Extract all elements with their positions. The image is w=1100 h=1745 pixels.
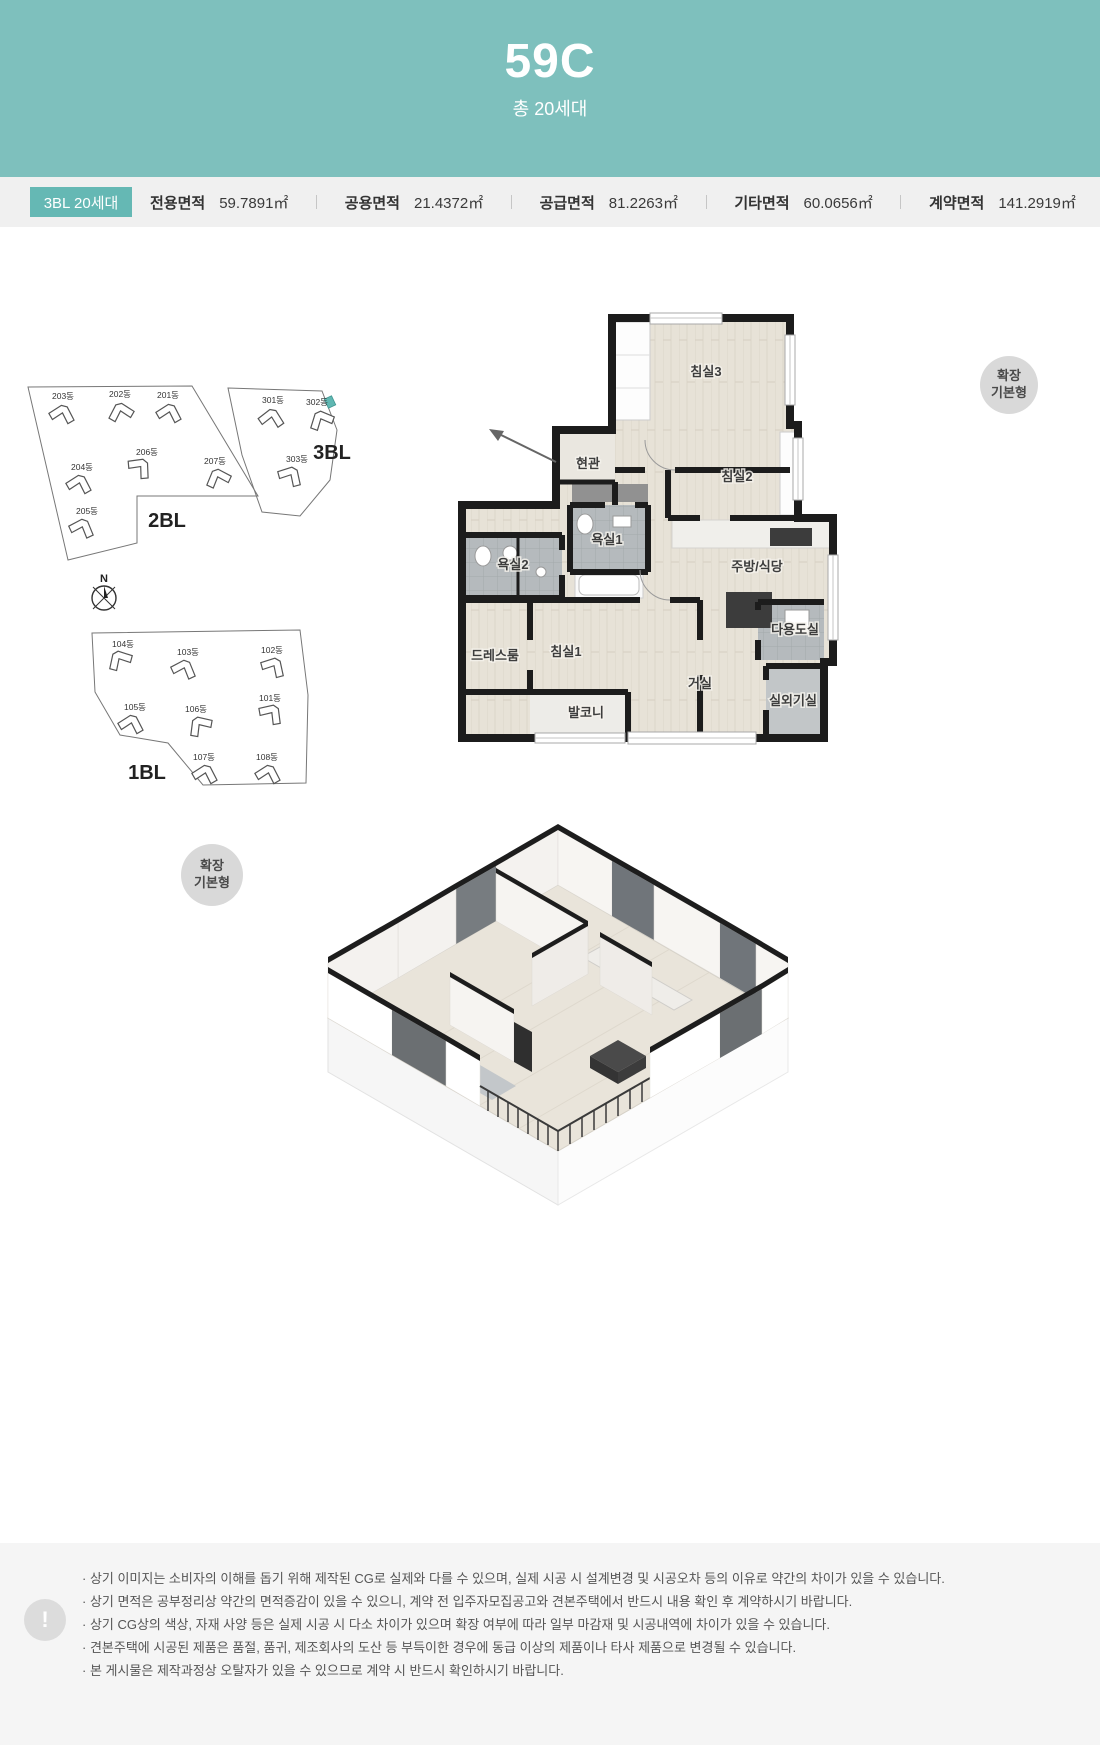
badge-line1: 확장: [997, 368, 1021, 385]
disclaimer-note: · 견본주택에 시공된 제품은 품절, 품귀, 제조회사의 도산 등 부득이한 …: [82, 1636, 1082, 1659]
compass-icon: N: [92, 573, 116, 610]
building-marker: [184, 711, 214, 739]
area-label: 계약면적: [929, 192, 984, 213]
room-label-ac-room: 실외기실: [769, 693, 817, 708]
floor-plan-2d: 침실3 현관 침실2 욕실1 욕실2 주방/식당 다용도실 드레스룸 침실1 거…: [455, 310, 855, 750]
room-label-bedroom3: 침실3: [690, 364, 721, 379]
area-value: 81.2263㎡: [609, 192, 678, 213]
area-item-supply: 공급면적 81.2263㎡: [540, 192, 678, 213]
toilet-bath2: [475, 546, 491, 566]
building-label: 107동: [193, 752, 215, 762]
divider: [900, 195, 901, 209]
building-marker: [275, 462, 306, 489]
building-label: 205동: [76, 506, 98, 516]
building-label: 206동: [136, 447, 158, 457]
area-label: 전용면적: [150, 192, 205, 213]
room-label-kitchen: 주방/식당: [731, 559, 782, 574]
building-marker: [191, 763, 220, 785]
unit-type-title: 59C: [0, 36, 1100, 89]
disclaimer-note: · 상기 면적은 공부정리상 약간의 면적증감이 있을 수 있으니, 계약 전 …: [82, 1590, 1082, 1613]
disclaimer-note: · 상기 CG상의 색상, 자재 사양 등은 실제 시공 시 다소 차이가 있으…: [82, 1613, 1082, 1636]
room-label-entry: 현관: [576, 456, 600, 471]
disclaimer-notes: · 상기 이미지는 소비자의 이해를 돕기 위해 제작된 CG로 실제와 다를 …: [82, 1567, 1082, 1682]
type-header: 59C 총 20세대: [0, 0, 1100, 177]
kitchen-island: [726, 592, 772, 628]
disclaimer-footer: ! · 상기 이미지는 소비자의 이해를 돕기 위해 제작된 CG로 실제와 다…: [0, 1543, 1100, 1745]
room-label-bath2: 욕실2: [497, 557, 528, 572]
building-label: 204동: [71, 462, 93, 472]
building-label: 202동: [109, 389, 131, 399]
area-label: 기타면적: [734, 192, 789, 213]
room-label-bedroom1: 침실1: [550, 644, 581, 659]
building-label: 102동: [261, 645, 283, 655]
block-name-3bl: 3BL: [313, 442, 351, 464]
building-label: 104동: [112, 639, 134, 649]
compass-north-label: N: [100, 573, 108, 585]
divider: [706, 195, 707, 209]
building-label: 103동: [177, 647, 199, 657]
building-marker: [256, 699, 286, 727]
room-label-living: 거실: [688, 676, 712, 691]
area-label: 공용면적: [345, 192, 400, 213]
area-value: 60.0656㎡: [804, 192, 873, 213]
sink-bath1: [613, 516, 631, 527]
toilet-bath1: [577, 514, 593, 534]
block-units-badge: 3BL 20세대: [30, 187, 132, 217]
area-info-bar: 3BL 20세대 전용면적 59.7891㎡ 공용면적 21.4372㎡ 공급면…: [0, 177, 1100, 227]
building-marker: [48, 403, 77, 425]
building-label: 203동: [52, 391, 74, 401]
building-marker: [258, 653, 289, 680]
building-label: 201동: [157, 390, 179, 400]
disclaimer-note: · 본 게시물은 제작과정상 오탈자가 있을 수 있으므로 계약 시 반드시 확…: [82, 1659, 1082, 1682]
exclamation-icon: !: [24, 1599, 66, 1641]
building-label: 101동: [259, 693, 281, 703]
area-value: 141.2919㎡: [998, 192, 1076, 213]
room-label-utility: 다용도실: [771, 622, 819, 637]
building-label: 106동: [185, 704, 207, 714]
block-name-2bl: 2BL: [148, 510, 186, 532]
building-label: 302동: [306, 397, 328, 407]
disclaimer-note: · 상기 이미지는 소비자의 이해를 돕기 위해 제작된 CG로 실제와 다를 …: [82, 1567, 1082, 1590]
building-label: 301동: [262, 395, 284, 405]
building-label: 105동: [124, 702, 146, 712]
cooktop: [770, 528, 812, 546]
area-label: 공급면적: [540, 192, 595, 213]
building-marker: [257, 408, 285, 428]
room-label-dressroom: 드레스룸: [471, 648, 519, 663]
building-label: 303동: [286, 454, 308, 464]
building-label: 108동: [256, 752, 278, 762]
building-marker: [65, 473, 94, 495]
block-name-1bl: 1BL: [128, 762, 166, 784]
building-marker: [125, 453, 155, 482]
shaft-block: [572, 484, 648, 502]
area-list: 전용면적 59.7891㎡ 공용면적 21.4372㎡ 공급면적 81.2263…: [150, 177, 1076, 227]
area-item-other: 기타면적 60.0656㎡: [734, 192, 872, 213]
building-marker: [155, 402, 184, 424]
area-item-common: 공용면적 21.4372㎡: [345, 192, 483, 213]
badge-line1: 확장: [200, 858, 224, 875]
building-marker: [104, 646, 135, 673]
building-label: 207동: [204, 456, 226, 466]
site-location-map: 203동 202동 201동 206동 204동 207동 205동 2BL 3…: [20, 335, 360, 795]
divider: [316, 195, 317, 209]
building-marker: [203, 466, 233, 490]
building-marker: [67, 516, 97, 540]
area-value: 21.4372㎡: [414, 192, 483, 213]
building-marker: [117, 713, 146, 735]
building-marker: [169, 657, 199, 681]
badge-line2: 기본형: [991, 385, 1027, 402]
bathtub: [579, 575, 639, 595]
area-value: 59.7891㎡: [219, 192, 288, 213]
room-label-balcony: 발코니: [568, 705, 604, 720]
expansion-badge-2d: 확장 기본형: [980, 356, 1038, 414]
room-label-bath1: 욕실1: [591, 532, 622, 547]
badge-line2: 기본형: [194, 875, 230, 892]
closet-bedroom3: [615, 322, 650, 420]
divider: [511, 195, 512, 209]
shower-drain: [536, 567, 546, 577]
room-label-bedroom2: 침실2: [721, 469, 752, 484]
expansion-badge-3d: 확장 기본형: [181, 844, 243, 906]
building-marker: [254, 763, 283, 785]
area-item-exclusive: 전용면적 59.7891㎡: [150, 192, 288, 213]
entrance-arrow: [497, 433, 556, 462]
unit-total-households: 총 20세대: [0, 95, 1100, 121]
area-item-contract: 계약면적 141.2919㎡: [929, 192, 1076, 213]
building-marker: [106, 401, 135, 423]
floor-plan-3d-isometric: [300, 815, 820, 1415]
building-marker: [306, 407, 336, 432]
